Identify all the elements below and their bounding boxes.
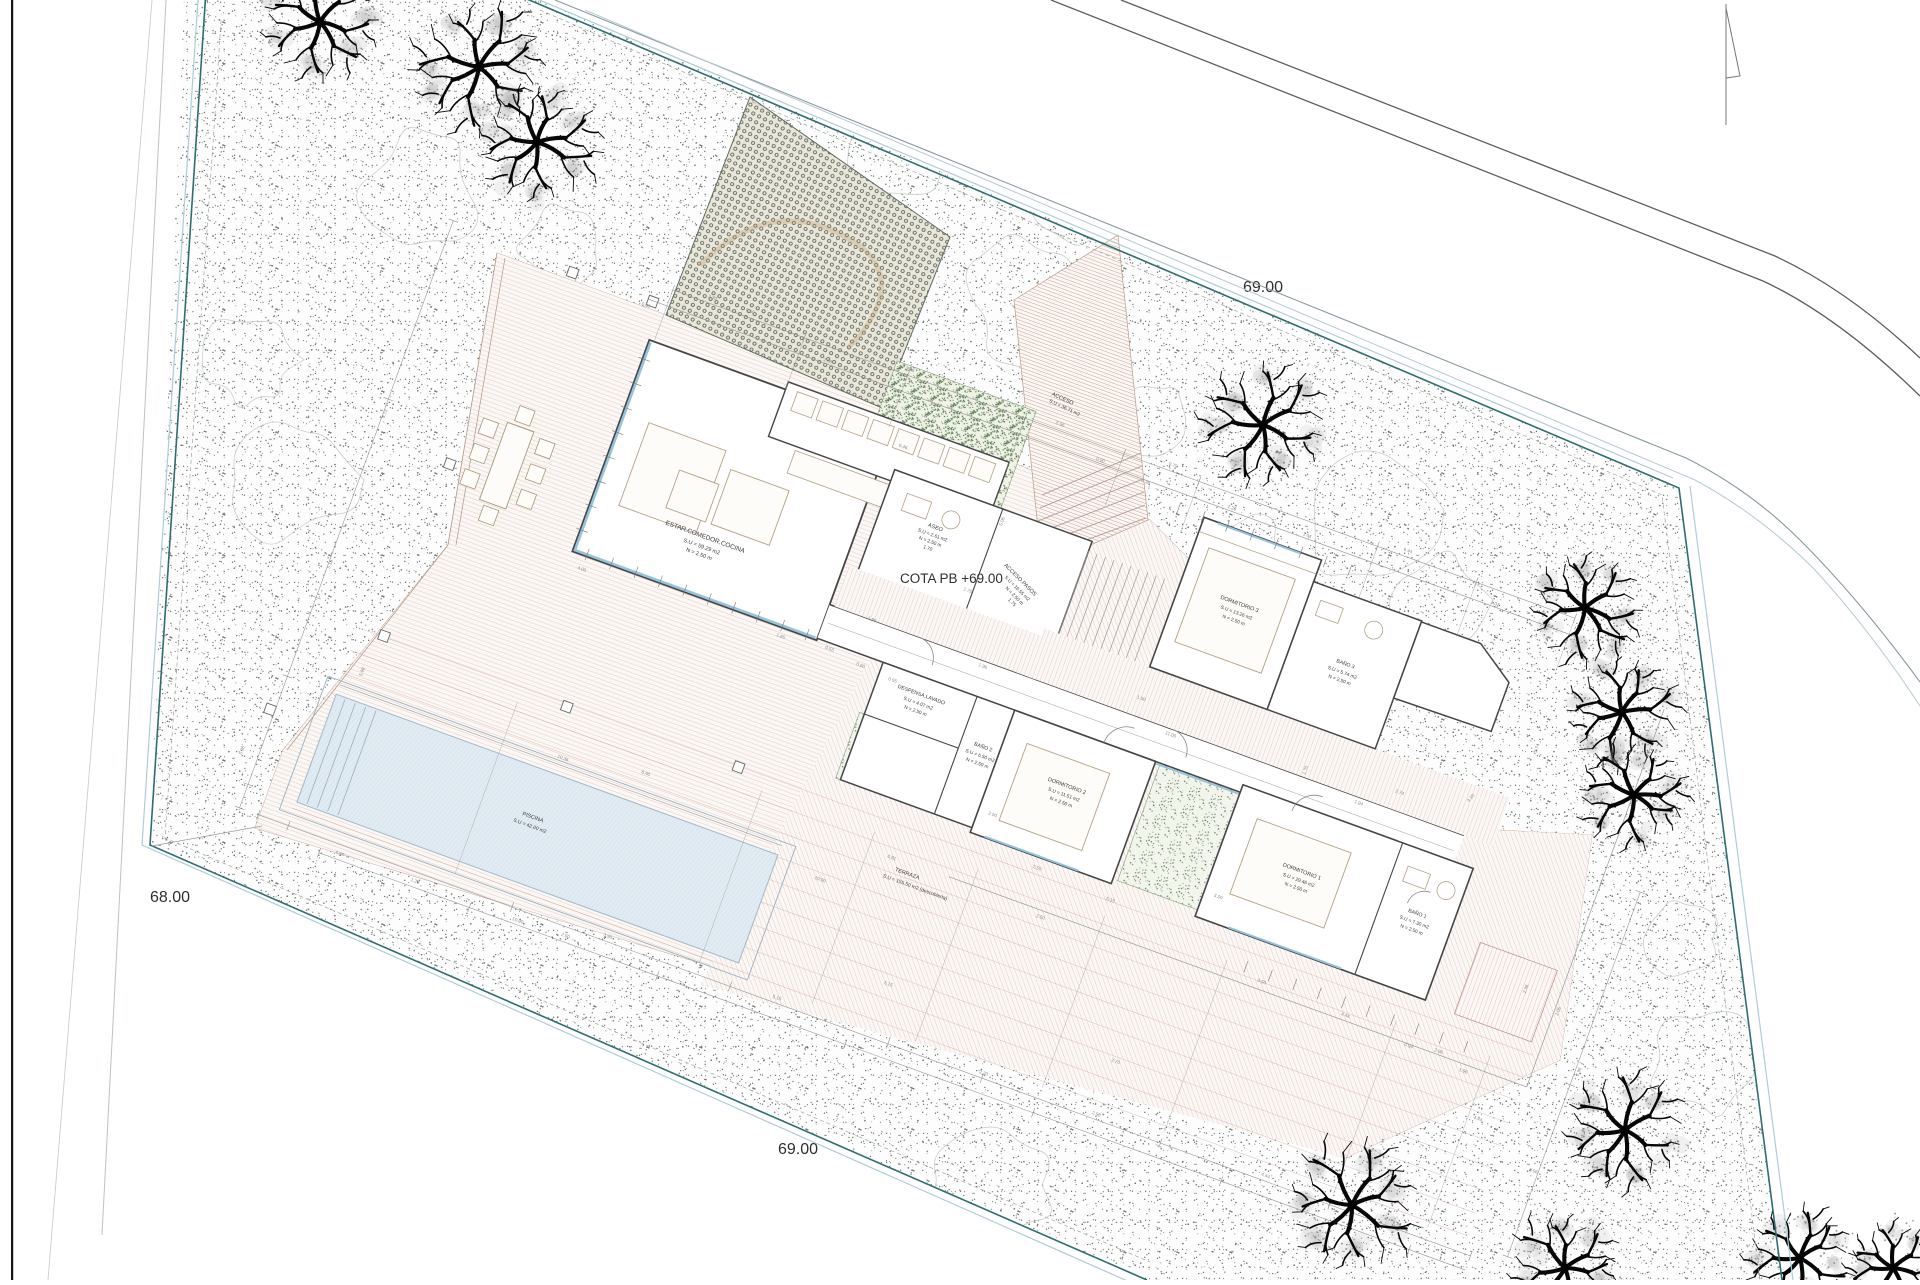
svg-text:69.00: 69.00: [778, 1141, 818, 1158]
svg-text:68.00: 68.00: [150, 889, 190, 906]
svg-text:COTA PB +69.00: COTA PB +69.00: [900, 571, 1003, 586]
